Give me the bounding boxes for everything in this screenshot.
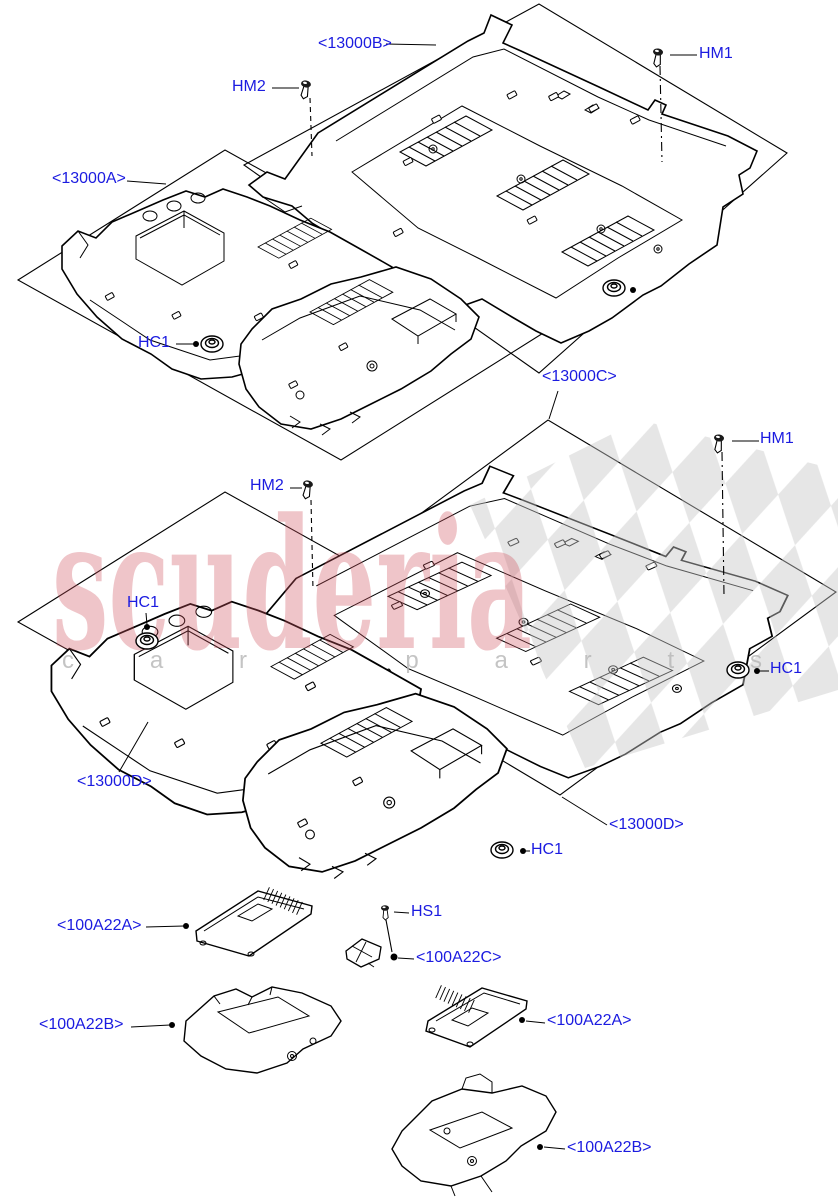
part-drawing-100a22b-right <box>392 1074 556 1196</box>
grommet-icon-hc1-d-left <box>136 633 158 649</box>
pushpin-icon-hm1-top <box>651 48 663 68</box>
part-label-100a22b-left: <100A22B> <box>39 1017 124 1033</box>
fastener-label-hc1-a: HC1 <box>138 335 170 351</box>
part-drawing-100a22c <box>346 939 381 967</box>
screw-icon-hs1 <box>381 905 389 920</box>
part-label-13000a: <13000A> <box>52 171 126 187</box>
part-label-13000d-left: <13000D> <box>77 774 152 790</box>
part-label-100a22c: <100A22C> <box>416 950 501 966</box>
part-drawing-100a22a-left <box>196 887 312 956</box>
pushpin-icon-hm2-top <box>298 80 312 100</box>
part-label-13000d-right: <13000D> <box>609 817 684 833</box>
grommet-icon-hc1-c <box>727 662 749 678</box>
fastener-label-hm1-top: HM1 <box>699 46 733 62</box>
part-label-100a22a-left: <100A22A> <box>57 918 142 934</box>
fastener-label-hc1-c: HC1 <box>770 661 802 677</box>
fastener-label-hm2-mid: HM2 <box>250 478 284 494</box>
part-drawing-100a22b-left <box>184 987 341 1073</box>
grommet-icon-hc1-a <box>201 336 223 352</box>
part-drawing-100a22a-right <box>426 985 527 1047</box>
grommet-icon-hc1-b <box>603 280 625 296</box>
fastener-label-hc1-d-left: HC1 <box>127 595 159 611</box>
grommet-icon-hc1-d-right <box>491 842 513 858</box>
fastener-label-hc1-d-right: HC1 <box>531 842 563 858</box>
fastener-label-hs1: HS1 <box>411 904 442 920</box>
fastener-label-hm1-mid: HM1 <box>760 431 794 447</box>
part-label-13000c: <13000C> <box>542 369 617 385</box>
part-label-13000b: <13000B> <box>318 36 392 52</box>
part-label-100a22a-right: <100A22A> <box>547 1013 632 1029</box>
part-label-100a22b-right: <100A22B> <box>567 1140 652 1156</box>
screw-icon-100a22c <box>391 954 398 961</box>
watermark-brand-text: scuderia <box>52 480 532 691</box>
parts-diagram-page: scuderia car parts <box>0 0 838 1200</box>
fastener-label-hm2-top: HM2 <box>232 79 266 95</box>
